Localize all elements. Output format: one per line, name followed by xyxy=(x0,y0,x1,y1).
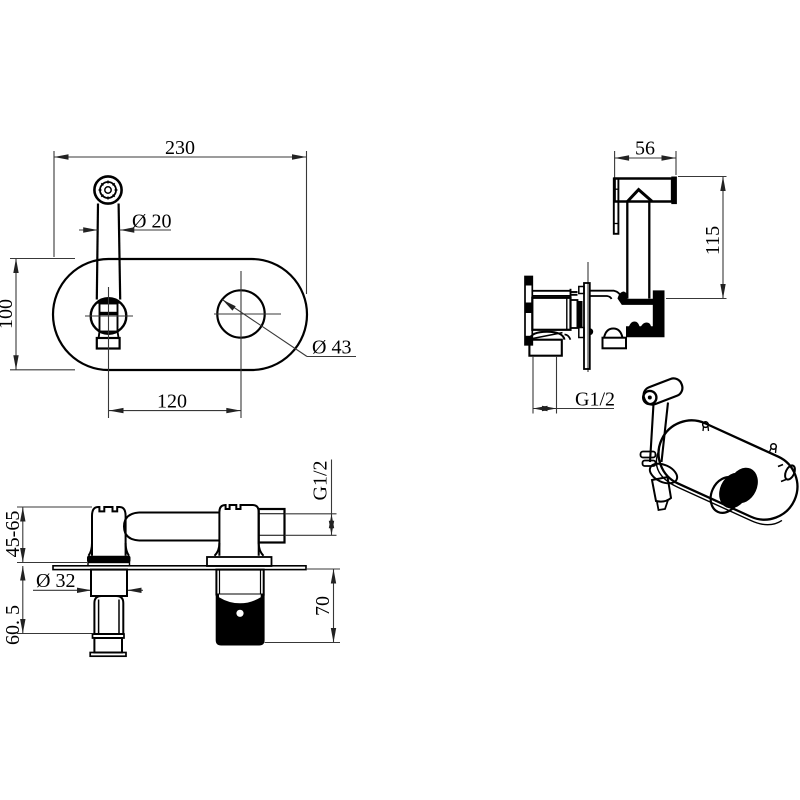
svg-text:G1/2: G1/2 xyxy=(575,389,615,411)
svg-text:70: 70 xyxy=(312,596,334,616)
svg-text:60. 5: 60. 5 xyxy=(2,605,24,645)
svg-text:Ø 43: Ø 43 xyxy=(312,337,351,359)
svg-text:230: 230 xyxy=(165,137,195,159)
svg-text:100: 100 xyxy=(0,299,17,329)
svg-text:120: 120 xyxy=(157,391,187,413)
svg-text:G1/2: G1/2 xyxy=(310,461,332,501)
svg-text:45-65: 45-65 xyxy=(2,511,24,558)
svg-text:Ø 20: Ø 20 xyxy=(132,211,171,233)
svg-text:115: 115 xyxy=(702,226,724,255)
svg-text:56: 56 xyxy=(635,138,655,160)
svg-text:Ø 32: Ø 32 xyxy=(36,570,75,592)
